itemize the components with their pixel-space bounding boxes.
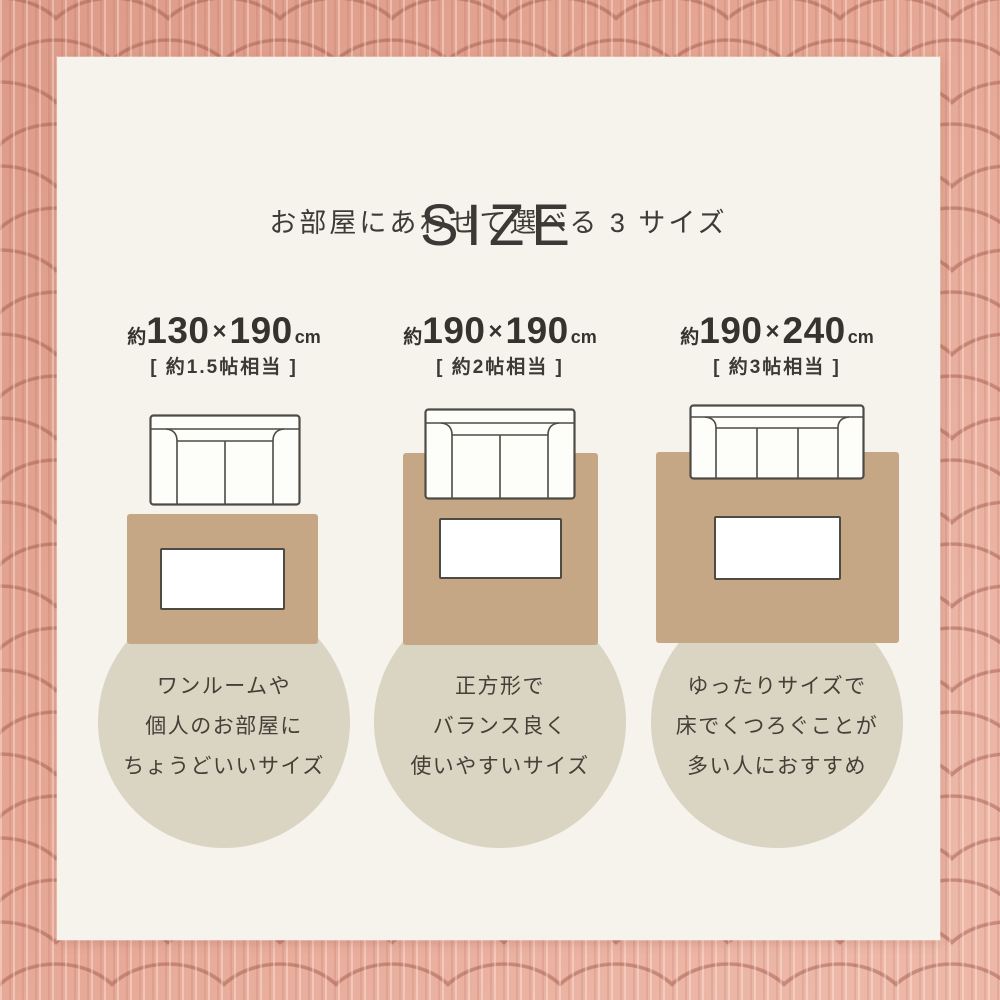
description-line: バランス良く: [374, 707, 626, 747]
description-line: 正方形で: [374, 667, 626, 707]
size-description: ワンルームや 個人のお部屋に ちょうどいいサイズ: [98, 667, 350, 787]
description-line: ちょうどいいサイズ: [98, 747, 350, 787]
times-symbol: ×: [765, 318, 779, 345]
size-description: ゆったりサイズで 床でくつろぐことが 多い人におすすめ: [651, 667, 903, 787]
low-table-top-view: [160, 548, 285, 610]
sofa-top-view-icon: [689, 404, 865, 480]
low-table-top-view: [439, 518, 562, 579]
description-line: 個人のお部屋に: [98, 707, 350, 747]
approx-prefix: 約: [680, 327, 699, 348]
size-dimensions-label: 約190×240cm: [639, 309, 915, 353]
size-guide-page: { "page": { "title": "SIZE", "subtitle":…: [0, 0, 1000, 1000]
low-table-top-view: [714, 516, 841, 580]
description-line: ゆったりサイズで: [651, 667, 903, 707]
sofa-top-view-icon: [424, 408, 576, 500]
size-unit: cm: [848, 327, 874, 347]
description-line: ワンルームや: [98, 667, 350, 707]
sofa-top-view-icon: [149, 414, 301, 506]
size-description: 正方形で バランス良く 使いやすいサイズ: [374, 667, 626, 787]
tatami-equivalent-label: [ 約3帖相当 ]: [639, 355, 915, 381]
description-line: 多い人におすすめ: [651, 747, 903, 787]
description-line: 床でくつろぐことが: [651, 707, 903, 747]
description-line: 使いやすいサイズ: [374, 747, 626, 787]
size-depth: 240: [783, 310, 846, 351]
size-panel: SIZE お部屋にあわせて選べる 3 サイズ 約130×190cm [ 約1.5…: [57, 57, 940, 940]
size-width: 190: [699, 310, 762, 351]
